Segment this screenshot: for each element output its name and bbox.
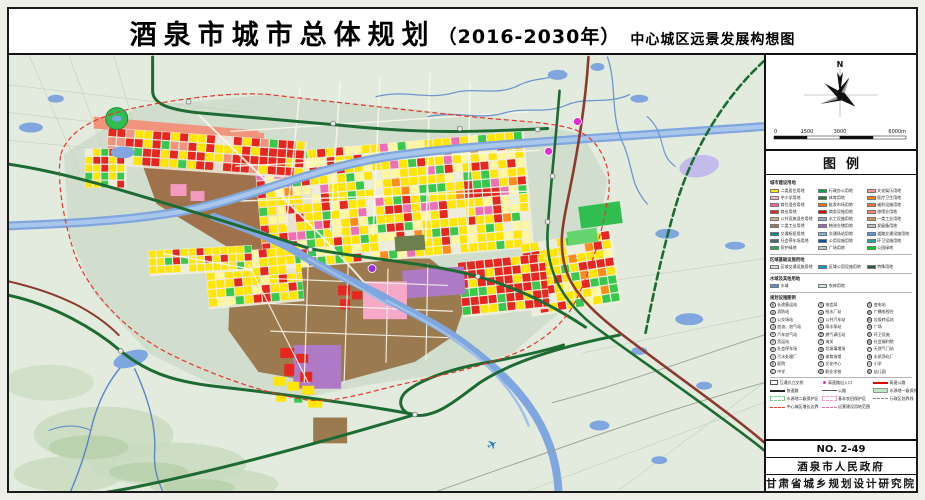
mosaic-block <box>413 221 421 229</box>
mosaic-block <box>368 216 376 224</box>
mosaic-block <box>330 193 338 201</box>
regional-legend: 区域交通设施用地区域公用设施用地特殊用地 <box>770 264 912 270</box>
mosaic-block <box>334 237 342 245</box>
mosaic-block <box>577 253 586 262</box>
interchange-dot <box>368 265 376 273</box>
mosaic-block <box>494 267 503 276</box>
mosaic-block <box>339 192 347 200</box>
color-swatch <box>770 265 779 269</box>
mosaic-block <box>608 275 617 284</box>
mosaic-block <box>596 259 605 268</box>
mosaic-block <box>520 203 528 211</box>
legend-label: 水质净化厂 <box>874 354 894 360</box>
color-swatch <box>818 196 827 200</box>
color-swatch <box>818 239 827 243</box>
mosaic-block <box>277 256 285 264</box>
water-body <box>696 382 712 390</box>
scale-tick: 3000 <box>834 129 847 135</box>
mosaic-block <box>179 151 187 159</box>
mosaic-block <box>337 174 345 182</box>
color-swatch <box>818 232 827 236</box>
mosaic-block <box>261 139 269 147</box>
mosaic-block <box>302 186 310 194</box>
mosaic-block <box>513 221 521 229</box>
mosaic-block <box>360 226 368 234</box>
mosaic-block <box>370 243 378 251</box>
mosaic-block <box>206 153 214 161</box>
mosaic-block <box>271 284 279 292</box>
mosaic-block <box>428 184 436 192</box>
mosaic-block <box>269 266 277 274</box>
mosaic-block <box>213 255 220 262</box>
landuse-header: 城市建设用地 <box>770 180 912 186</box>
mosaic-block <box>384 197 392 205</box>
mosaic-block <box>85 173 92 180</box>
mosaic-block <box>570 263 579 272</box>
mosaic-block <box>522 230 530 238</box>
mosaic-block <box>197 152 205 160</box>
legend-label: 防护绿地 <box>781 245 797 251</box>
legend-label: 批发市场用地 <box>829 202 853 208</box>
mosaic-block <box>165 258 172 265</box>
mosaic-block <box>401 177 409 185</box>
mosaic-block <box>173 257 180 264</box>
facility-symbol: 医 <box>770 361 776 367</box>
landuse-block <box>302 386 314 395</box>
legend-label: 高速路出入口 <box>828 380 852 386</box>
mosaic-block <box>485 259 494 268</box>
water-body <box>48 95 64 103</box>
mosaic-block <box>223 163 231 171</box>
scale-tick: 1500 <box>801 129 814 135</box>
mosaic-block <box>530 263 539 272</box>
color-swatch <box>770 217 779 221</box>
legend-label: 水工设施用地 <box>829 216 853 222</box>
line-sample <box>873 398 888 399</box>
mosaic-block <box>217 289 225 297</box>
landuse-item: 道路交通设施用地 <box>867 231 912 237</box>
line-sample <box>873 382 888 384</box>
mosaic-block <box>400 169 408 177</box>
mosaic-block <box>392 178 400 186</box>
mosaic-block <box>296 141 304 149</box>
mosaic-block <box>497 294 506 303</box>
mosaic-block <box>450 227 458 235</box>
mosaic-block <box>332 219 340 227</box>
terrain-shading <box>14 456 124 491</box>
plan-sheet: 酒泉市城市总体规划 （2016-2030年） 中心城区远景发展构想图 ✈ N <box>7 7 918 493</box>
mosaic-block <box>297 282 303 290</box>
mosaic-block <box>417 158 425 166</box>
color-swatch <box>770 284 779 288</box>
mosaic-block <box>324 229 332 237</box>
mosaic-block <box>237 254 244 261</box>
mosaic-block <box>462 306 471 315</box>
line-sample <box>822 407 837 408</box>
mosaic-block <box>271 293 279 301</box>
legend-label: 天然气门站 <box>874 346 894 352</box>
mosaic-block <box>601 231 610 240</box>
water-body <box>548 70 568 80</box>
mosaic-block <box>151 158 159 166</box>
mosaic-block <box>489 304 498 313</box>
mosaic-block <box>350 218 358 226</box>
mosaic-block <box>165 266 172 273</box>
mosaic-block <box>410 186 418 194</box>
facility-item: 交公交场站 <box>770 317 815 323</box>
mosaic-block <box>253 294 261 302</box>
legend-label: 汽车加气站 <box>777 332 797 338</box>
mosaic-block <box>579 262 588 271</box>
legend-label: 文化中心 <box>825 361 841 367</box>
legend-label: 商住混合用地 <box>781 202 805 208</box>
landuse-item: 福利设施用地 <box>867 202 912 208</box>
road-node <box>545 219 550 224</box>
mosaic-block <box>493 205 501 213</box>
mosaic-block <box>117 138 125 146</box>
mosaic-block <box>468 225 476 233</box>
mosaic-block <box>355 172 363 180</box>
mosaic-block <box>304 204 312 212</box>
mosaic-block <box>599 277 608 286</box>
mosaic-block <box>101 157 108 164</box>
mosaic-block <box>278 149 286 157</box>
water-body <box>590 63 604 71</box>
landuse-item: 防护绿地 <box>770 245 815 251</box>
mosaic-block <box>474 198 482 206</box>
landuse-item: 商务设施用地 <box>818 209 863 215</box>
mosaic-block <box>589 269 598 278</box>
mosaic-block <box>389 143 397 151</box>
mosaic-block <box>351 227 359 235</box>
mosaic-block <box>333 228 341 236</box>
planning-map: ✈ <box>9 55 764 491</box>
facility-item: 福社会福利院 <box>867 339 912 345</box>
mosaic-block <box>472 171 480 179</box>
facility-symbol: 客 <box>770 302 776 308</box>
mosaic-block <box>161 141 169 149</box>
mosaic-block <box>135 139 143 147</box>
mosaic-block <box>286 256 294 264</box>
water-legend: 水域农林用地 <box>770 283 912 289</box>
color-swatch <box>818 203 827 207</box>
mosaic-block <box>399 160 407 168</box>
color-swatch <box>867 232 876 236</box>
mosaic-block <box>403 204 411 212</box>
mosaic-block <box>209 298 217 306</box>
line-item: 水源地一级保护区 <box>873 388 916 394</box>
mosaic-block <box>469 234 477 242</box>
mosaic-block <box>394 205 402 213</box>
legend-label: 公共汽车站 <box>825 317 845 323</box>
legend-label: 货运站 <box>777 339 789 345</box>
mosaic-block <box>413 212 421 220</box>
mosaic-block <box>343 236 351 244</box>
line-sample <box>770 396 785 401</box>
mosaic-block <box>522 221 530 229</box>
mosaic-block <box>153 131 161 139</box>
mosaic-block <box>480 305 489 314</box>
mosaic-block <box>611 293 620 302</box>
mosaic-block <box>326 148 334 156</box>
mosaic-block <box>469 243 477 251</box>
mosaic-block <box>415 140 423 148</box>
mosaic-block <box>269 139 277 147</box>
mosaic-block <box>431 220 439 228</box>
facility-symbol: 信 <box>818 302 824 308</box>
color-swatch <box>818 189 827 193</box>
mosaic-block <box>375 198 383 206</box>
mosaic-block <box>445 165 453 173</box>
mosaic-block <box>236 296 244 304</box>
legend-label: 医院 <box>777 361 785 367</box>
mosaic-block <box>383 179 391 187</box>
mosaic-block <box>460 235 468 243</box>
mosaic-block <box>518 185 526 193</box>
landuse-block <box>273 377 285 386</box>
mosaic-block <box>397 142 405 150</box>
facility-symbol: 视 <box>867 310 873 316</box>
legend-label: 高速公路 <box>890 380 906 386</box>
mosaic-block <box>144 131 152 139</box>
mosaic-block <box>402 195 410 203</box>
landuse-item: 体育用地 <box>818 195 863 201</box>
mosaic-block <box>188 143 196 151</box>
mosaic-block <box>409 168 417 176</box>
mosaic-block <box>252 138 260 146</box>
road-node <box>535 127 540 132</box>
mosaic-block <box>205 162 213 170</box>
mosaic-block <box>476 260 485 269</box>
legend-label: 商业用地 <box>781 209 797 215</box>
mosaic-block <box>605 258 614 267</box>
mosaic-block <box>478 287 487 296</box>
mosaic-block <box>244 246 251 253</box>
mosaic-block <box>352 236 360 244</box>
landuse-legend: 二类居住用地行政办公用地文化娱乐用地中小学用地体育用地医疗卫生用地商住混合用地批… <box>770 188 912 252</box>
facility-symbol: 场 <box>867 324 873 330</box>
legend-label: 体育用地 <box>829 195 845 201</box>
scale-tick: 0 <box>774 129 777 135</box>
mosaic-block <box>343 245 351 253</box>
mosaic-block <box>395 214 403 222</box>
legend-label: 远景建设用地范围 <box>838 404 870 410</box>
color-swatch <box>867 265 876 269</box>
mosaic-block <box>598 268 607 277</box>
road-node <box>331 121 336 126</box>
landuse-item: 中小学用地 <box>770 195 815 201</box>
facility-symbol: 公 <box>818 317 824 323</box>
facility-item: 燃燃气调压站 <box>818 332 863 338</box>
landuse-item: 水工设施用地 <box>818 216 863 222</box>
color-swatch <box>770 210 779 214</box>
landuse-item: 交通枢纽用地 <box>770 231 815 237</box>
mosaic-block <box>149 259 156 266</box>
mosaic-block <box>242 146 250 154</box>
landuse-item: 交通场站用地 <box>818 231 863 237</box>
mosaic-block <box>475 207 483 215</box>
facility-symbol: 气 <box>770 332 776 338</box>
mosaic-block <box>494 214 502 222</box>
mosaic-block <box>277 206 285 214</box>
mosaic-block <box>293 187 301 195</box>
mosaic-block <box>483 197 491 205</box>
mosaic-block <box>444 156 452 164</box>
mosaic-block <box>268 207 276 215</box>
mosaic-block <box>322 211 330 219</box>
landuse-block <box>287 382 299 391</box>
mosaic-block <box>189 134 197 142</box>
mosaic-block <box>425 247 433 255</box>
mosaic-block <box>308 150 316 158</box>
mosaic-block <box>499 169 507 177</box>
landuse-block <box>284 364 294 376</box>
legend-label: 垃圾转运站 <box>874 317 894 323</box>
mosaic-block <box>404 213 412 221</box>
mosaic-block <box>341 218 349 226</box>
mosaic-block <box>516 158 524 166</box>
mosaic-block <box>142 157 150 165</box>
mosaic-block <box>432 229 440 237</box>
mosaic-block <box>436 174 444 182</box>
line-item: 水源地二级保护区 <box>770 396 819 402</box>
mosaic-block <box>538 254 545 262</box>
mosaic-block <box>427 175 435 183</box>
mosaic-block <box>439 201 447 209</box>
mosaic-block <box>568 254 577 263</box>
mosaic-block <box>489 161 497 169</box>
landuse-item: 批发市场用地 <box>818 202 863 208</box>
landuse-block <box>300 372 312 382</box>
mosaic-block <box>448 200 456 208</box>
mosaic-block <box>149 266 156 273</box>
mosaic-block <box>149 251 156 258</box>
mosaic-block <box>412 203 420 211</box>
mosaic-block <box>442 237 450 245</box>
mosaic-block <box>126 129 134 137</box>
mosaic-block <box>583 288 592 297</box>
mosaic-block <box>225 279 233 287</box>
facility-item: 水给水厂站 <box>818 309 863 315</box>
line-sample <box>822 396 837 401</box>
facility-item: 信电信局 <box>818 302 863 308</box>
mosaic-block <box>506 293 515 302</box>
mosaic-block <box>353 146 361 154</box>
mosaic-block <box>488 295 497 304</box>
mosaic-block <box>406 141 414 149</box>
facility-symbol: 职 <box>818 369 824 375</box>
mosaic-block <box>181 249 188 256</box>
mosaic-block <box>316 239 324 247</box>
mosaic-block <box>223 154 231 162</box>
color-swatch <box>867 239 876 243</box>
road-node <box>186 99 191 104</box>
mosaic-block <box>328 175 336 183</box>
mosaic-block <box>179 142 187 150</box>
mosaic-block <box>541 280 548 288</box>
mosaic-block <box>449 218 457 226</box>
mosaic-block <box>117 173 124 180</box>
legend-label: 幼儿园 <box>874 369 886 375</box>
line-item: 互通式立交桥 <box>770 380 819 386</box>
mosaic-block <box>376 206 384 214</box>
legend-label: 二类工业用地 <box>781 223 805 229</box>
legend-label: 污水处理厂 <box>777 354 797 360</box>
mosaic-block <box>378 233 386 241</box>
mosaic-block <box>196 161 204 169</box>
mosaic-block <box>418 167 426 175</box>
legend-label: 公园绿地 <box>877 245 893 251</box>
road-node <box>475 274 480 279</box>
mosaic-block <box>352 244 360 252</box>
water-item: 农林用地 <box>818 283 863 289</box>
mosaic-block <box>571 272 580 281</box>
mosaic-block <box>401 186 409 194</box>
legend-label: 商务设施用地 <box>829 209 853 215</box>
mosaic-block <box>491 179 499 187</box>
mosaic-block <box>447 191 455 199</box>
mosaic-block <box>277 167 285 175</box>
line-sample <box>770 390 785 392</box>
legend-label: 二类居住用地 <box>781 188 805 194</box>
scale-bar: 0150030006000m <box>774 129 906 139</box>
regional-header: 区域基础设施用地 <box>770 257 912 263</box>
sheet-number: NO. 2-49 <box>766 439 916 457</box>
color-swatch <box>770 232 779 236</box>
mosaic-block <box>513 230 521 238</box>
mosaic-block <box>157 266 164 273</box>
mosaic-block <box>463 172 471 180</box>
mosaic-block <box>101 149 108 156</box>
legend-label: 物流仓储用地 <box>829 223 853 229</box>
mosaic-block <box>504 231 512 239</box>
mosaic-block <box>250 156 258 164</box>
legend-label: 公共设施混合用地 <box>781 216 813 222</box>
legend-label: 体育场馆 <box>825 354 841 360</box>
legend-body: 城市建设用地 二类居住用地行政办公用地文化娱乐用地中小学用地体育用地医疗卫生用地… <box>766 175 916 439</box>
facility-symbol: 泵 <box>818 324 824 330</box>
mosaic-block <box>502 204 510 212</box>
legend-label: 公交场站 <box>777 317 793 323</box>
line-item: 快速路 <box>770 388 819 394</box>
mosaic-block <box>157 258 164 265</box>
facility-item: 幼幼儿园 <box>867 369 912 375</box>
mosaic-block <box>516 301 525 310</box>
facility-item: 体体育场馆 <box>818 354 863 360</box>
road-node <box>457 126 462 131</box>
mosaic-block <box>205 264 212 271</box>
facility-symbol: 转 <box>867 317 873 323</box>
mosaic-block <box>404 222 412 230</box>
mosaic-block <box>421 203 429 211</box>
mosaic-block <box>236 246 243 253</box>
mosaic-block <box>319 176 327 184</box>
north-label: N <box>837 60 844 69</box>
mosaic-block <box>314 212 322 220</box>
mosaic-block <box>434 246 442 254</box>
road-node <box>413 412 418 417</box>
mosaic-block <box>433 237 441 245</box>
mosaic-block <box>348 191 356 199</box>
mosaic-block <box>298 291 304 299</box>
road-node <box>118 349 123 354</box>
mosaic-block <box>487 286 496 295</box>
mosaic-block <box>471 153 479 161</box>
facilities-header: 规划设施图例 <box>770 295 912 301</box>
mosaic-block <box>418 176 426 184</box>
mosaic-block <box>435 156 443 164</box>
mosaic-block <box>509 177 517 185</box>
